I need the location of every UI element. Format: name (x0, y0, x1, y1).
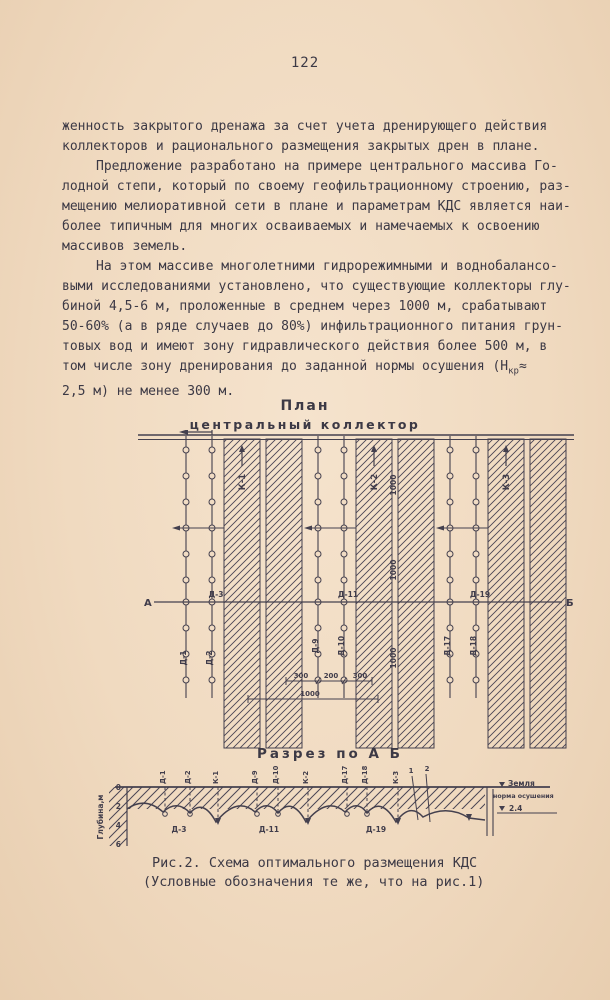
svg-text:К-2: К-2 (302, 771, 310, 784)
svg-text:2: 2 (116, 802, 121, 811)
svg-text:1000: 1000 (389, 560, 398, 581)
svg-text:Д-19: Д-19 (366, 825, 386, 834)
ground-label: Земля (508, 779, 535, 788)
text-line: лодной степи, который по своему геофильт… (62, 177, 564, 197)
section-title: Разрез по А Б (95, 746, 565, 762)
norm-value: 2.4 (509, 804, 522, 813)
svg-text:200: 200 (324, 672, 339, 680)
text-line: мещению мелиоративной сети в плане и пар… (62, 197, 564, 217)
svg-text:1000: 1000 (389, 475, 398, 496)
body-text: женность закрытого дренажа за счет учета… (62, 117, 564, 402)
point-b-label: Б (566, 598, 574, 609)
text-line: массивов земель. (62, 237, 564, 257)
svg-text:Д-18: Д-18 (361, 765, 369, 784)
cross-section-figure: 0 2 4 6 Глубина,м (95, 762, 565, 859)
section-bottom-labels: Д-3 Д-11 Д-19 (171, 825, 386, 834)
text-line: Предложение разработано на примере центр… (62, 157, 564, 177)
svg-text:1: 1 (409, 767, 414, 775)
collector-k3-label: К-3 (502, 474, 512, 490)
drain-d3-label: Д-3 (208, 590, 223, 599)
text-line: более типичным для многих осваиваемых и … (62, 217, 564, 237)
text-line: товых вод и имеют зону гидравлического д… (62, 337, 564, 357)
svg-text:Д-17: Д-17 (443, 636, 452, 656)
text-line: том числе зону дренирования до заданной … (62, 357, 564, 382)
svg-text:4: 4 (116, 821, 121, 830)
text-line: женность закрытого дренажа за счет учета… (62, 117, 564, 137)
right-annotations: Земля норма осушения 2.4 (493, 779, 557, 813)
text-line: выми исследованиями установлено, что сущ… (62, 277, 564, 297)
svg-text:Д-11: Д-11 (259, 825, 279, 834)
svg-text:1000: 1000 (389, 648, 398, 669)
text-line: коллекторов и рационального размещения з… (62, 137, 564, 157)
svg-text:300: 300 (294, 672, 309, 680)
svg-text:Д-10: Д-10 (337, 636, 346, 656)
subscript-kr: кр (508, 367, 519, 377)
svg-text:2: 2 (425, 765, 430, 773)
svg-text:Д-18: Д-18 (469, 636, 478, 656)
text-line: На этом массиве многолетними гидрорежимн… (62, 257, 564, 277)
svg-text:300: 300 (353, 672, 368, 680)
text-line: 50-60% (а в ряде случаев до 80%) инфильт… (62, 317, 564, 337)
svg-text:К-3: К-3 (392, 771, 400, 784)
svg-text:Д-9: Д-9 (311, 638, 320, 653)
svg-text:Д-3: Д-3 (171, 825, 186, 834)
norm-label: норма осушения (493, 793, 554, 800)
svg-text:К-1: К-1 (212, 771, 220, 784)
section-top-labels: Д-1 Д-2 К-1 Д-9 Д-10 К-2 Д-17 Д-18 К-3 (159, 765, 400, 784)
connector-lines (172, 526, 488, 531)
svg-text:Д-10: Д-10 (272, 765, 280, 784)
plan-title: План (0, 398, 610, 414)
svg-text:Д-17: Д-17 (341, 765, 349, 784)
caption-line: Рис.2. Схема оптимального размещения КДС (143, 854, 484, 873)
svg-text:Д-1: Д-1 (159, 770, 167, 784)
page-number: 122 (0, 55, 610, 71)
drain-d11-label: Д-11 (338, 590, 358, 599)
collector-arrowheads (215, 814, 472, 825)
svg-text:Д-1: Д-1 (179, 650, 188, 665)
text-line: биной 4,5-6 м, проложенные в среднем чер… (62, 297, 564, 317)
collector-k2-label: К-2 (370, 474, 380, 490)
collector-k1-label: К-1 (238, 474, 248, 490)
caption-line: (Условные обозначения те же, что на рис.… (143, 873, 484, 892)
depth-axis-label: Глубина,м (96, 795, 105, 840)
plan-figure: К-1 К-2 К-3 1000 1000 1000 А Б Д-3 Д-11 … (138, 430, 578, 762)
svg-text:Д-2: Д-2 (184, 770, 192, 784)
scanned-document-page: 122 женность закрытого дренажа за счет у… (0, 0, 610, 1000)
left-hatch-wedge (109, 787, 127, 846)
drain-d19-label: Д-19 (470, 590, 490, 599)
svg-text:Д-2: Д-2 (205, 650, 214, 665)
point-a-label: А (144, 598, 152, 609)
svg-text:Д-9: Д-9 (251, 770, 259, 784)
figure-caption: Рис.2. Схема оптимального размещения КДС… (143, 854, 484, 892)
svg-text:1000: 1000 (300, 690, 320, 698)
svg-text:6: 6 (116, 840, 121, 849)
